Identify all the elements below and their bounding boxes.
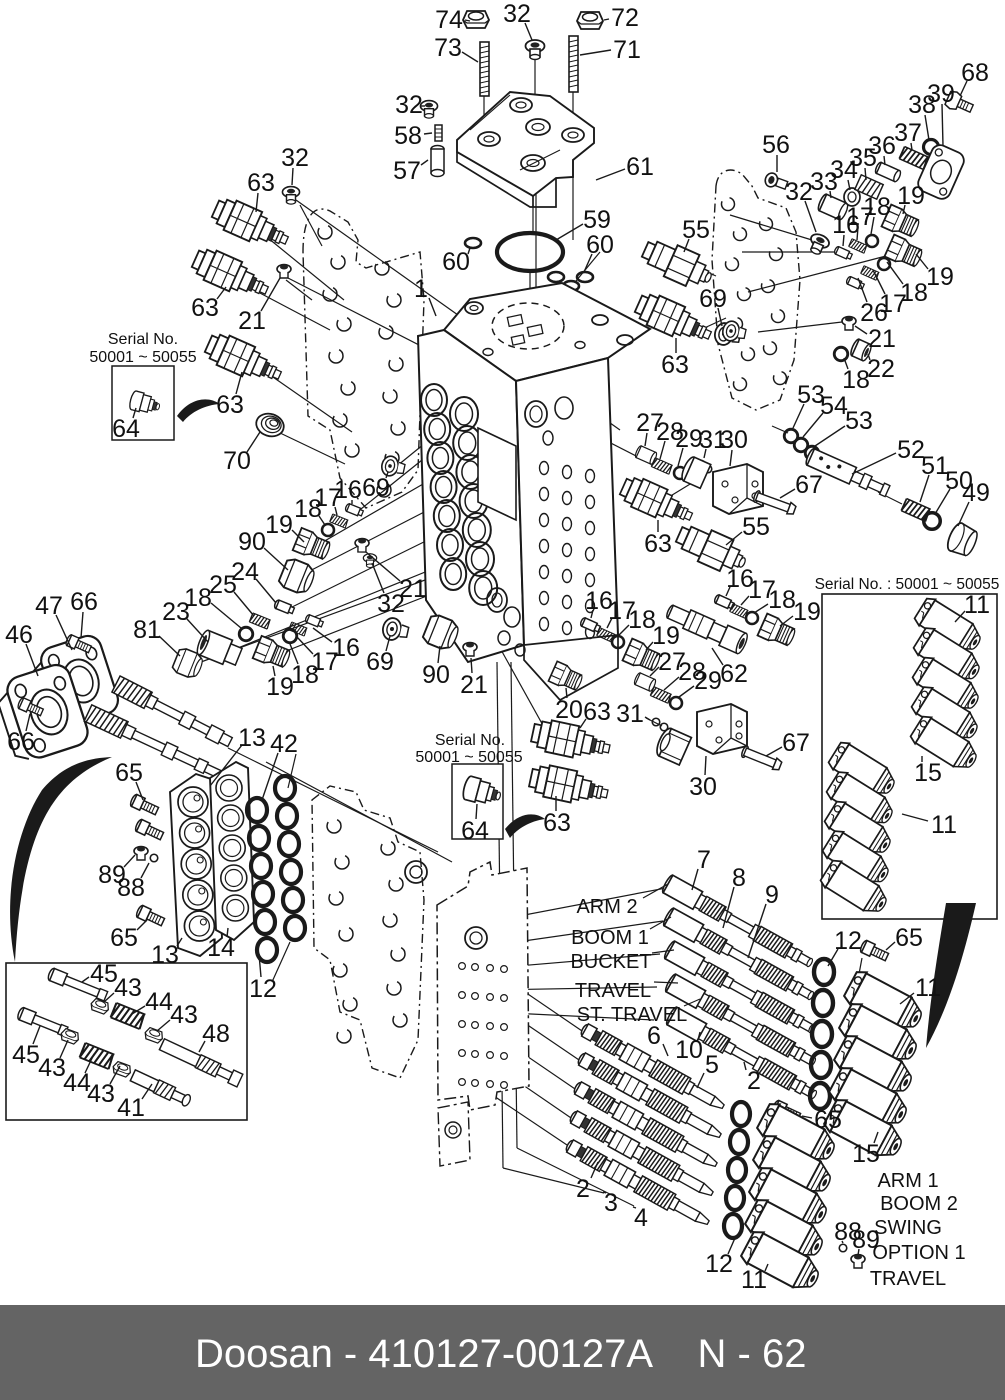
svg-text:30: 30 [720, 426, 748, 454]
svg-text:16: 16 [334, 476, 362, 504]
svg-text:81: 81 [133, 616, 161, 644]
svg-text:44: 44 [145, 988, 173, 1016]
svg-text:57: 57 [393, 157, 421, 185]
svg-text:19: 19 [652, 622, 680, 650]
svg-text:63: 63 [661, 351, 689, 379]
svg-text:18: 18 [863, 193, 891, 221]
svg-text:31: 31 [616, 700, 644, 728]
svg-text:2: 2 [576, 1175, 590, 1203]
svg-text:9: 9 [765, 881, 779, 909]
svg-text:25: 25 [209, 571, 237, 599]
svg-text:7: 7 [697, 846, 711, 874]
svg-text:50001 ~ 50055: 50001 ~ 50055 [415, 749, 522, 766]
svg-text:19: 19 [897, 182, 925, 210]
svg-text:16: 16 [332, 634, 360, 662]
svg-text:90: 90 [422, 661, 450, 689]
svg-text:2: 2 [747, 1067, 761, 1095]
svg-text:39: 39 [927, 80, 955, 108]
svg-text:74: 74 [435, 6, 463, 34]
svg-text:BUCKET: BUCKET [570, 951, 651, 973]
svg-text:N - 62: N - 62 [698, 1332, 807, 1376]
svg-text:11: 11 [964, 591, 990, 619]
svg-text:66: 66 [7, 728, 35, 756]
svg-text:63: 63 [191, 294, 219, 322]
svg-text:64: 64 [112, 415, 140, 443]
svg-text:13: 13 [151, 941, 179, 969]
svg-text:63: 63 [247, 169, 275, 197]
svg-text:32: 32 [281, 144, 309, 172]
svg-text:53: 53 [845, 407, 873, 435]
svg-text:42: 42 [270, 730, 298, 758]
svg-text:OPTION 1: OPTION 1 [872, 1242, 965, 1264]
svg-text:32: 32 [395, 91, 423, 119]
svg-text:Doosan - 410127-00127A: Doosan - 410127-00127A [195, 1332, 653, 1376]
svg-text:66: 66 [70, 588, 98, 616]
svg-text:43: 43 [38, 1054, 66, 1082]
svg-text:60: 60 [586, 231, 614, 259]
svg-text:19: 19 [265, 511, 293, 539]
svg-text:41: 41 [117, 1094, 145, 1122]
svg-text:21: 21 [868, 325, 896, 353]
svg-text:67: 67 [795, 471, 823, 499]
svg-text:67: 67 [782, 729, 810, 757]
svg-text:65: 65 [110, 924, 138, 952]
svg-text:63: 63 [216, 391, 244, 419]
svg-text:1: 1 [414, 275, 428, 303]
svg-text:14: 14 [207, 934, 235, 962]
svg-text:60: 60 [442, 248, 470, 276]
svg-text:11: 11 [931, 811, 957, 839]
svg-text:65: 65 [895, 924, 923, 952]
svg-text:21: 21 [460, 671, 488, 699]
svg-text:ST. TRAVEL: ST. TRAVEL [577, 1004, 687, 1026]
svg-text:26: 26 [860, 299, 888, 327]
svg-text:SWING: SWING [874, 1217, 942, 1239]
svg-text:55: 55 [742, 513, 770, 541]
svg-text:65: 65 [814, 1106, 842, 1134]
svg-text:BOOM 2: BOOM 2 [880, 1193, 958, 1215]
svg-text:22: 22 [867, 355, 895, 383]
svg-text:68: 68 [961, 59, 989, 87]
svg-text:18: 18 [768, 586, 796, 614]
svg-text:6: 6 [647, 1022, 661, 1050]
svg-text:69: 69 [366, 648, 394, 676]
svg-text:ARM 2: ARM 2 [576, 896, 637, 918]
svg-text:12: 12 [705, 1250, 733, 1278]
svg-text:5: 5 [705, 1051, 719, 1079]
svg-text:13: 13 [238, 724, 266, 752]
svg-text:64: 64 [461, 817, 489, 845]
svg-text:43: 43 [87, 1080, 115, 1108]
svg-text:11: 11 [741, 1266, 767, 1294]
svg-text:32: 32 [503, 0, 531, 28]
svg-text:ARM 1: ARM 1 [877, 1170, 938, 1192]
svg-text:BOOM 1: BOOM 1 [571, 927, 649, 949]
svg-text:10: 10 [675, 1036, 703, 1064]
svg-text:63: 63 [543, 809, 571, 837]
svg-text:43: 43 [114, 974, 142, 1002]
svg-text:15: 15 [852, 1140, 880, 1168]
svg-text:Serial No.: Serial No. [108, 331, 178, 348]
svg-text:49: 49 [962, 479, 990, 507]
svg-text:47: 47 [35, 592, 63, 620]
svg-text:65: 65 [115, 759, 143, 787]
svg-text:58: 58 [394, 122, 422, 150]
svg-text:20: 20 [555, 696, 583, 724]
svg-text:73: 73 [434, 34, 462, 62]
svg-text:69: 69 [699, 285, 727, 313]
svg-text:30: 30 [689, 773, 717, 801]
svg-text:63: 63 [644, 530, 672, 558]
svg-text:90: 90 [238, 528, 266, 556]
svg-text:70: 70 [223, 447, 251, 475]
svg-text:12: 12 [834, 927, 862, 955]
svg-text:59: 59 [583, 206, 611, 234]
svg-text:72: 72 [611, 4, 639, 32]
svg-text:48: 48 [202, 1020, 230, 1048]
svg-text:8: 8 [732, 864, 746, 892]
svg-text:43: 43 [170, 1001, 198, 1029]
svg-text:56: 56 [762, 131, 790, 159]
svg-text:18: 18 [842, 366, 870, 394]
svg-text:71: 71 [613, 36, 641, 64]
svg-text:Serial No.: Serial No. [435, 732, 505, 749]
svg-text:3: 3 [604, 1189, 618, 1217]
svg-text:54: 54 [820, 392, 848, 420]
svg-text:45: 45 [12, 1041, 40, 1069]
svg-text:TRAVEL: TRAVEL [870, 1268, 946, 1290]
svg-text:19: 19 [926, 263, 954, 291]
svg-text:19: 19 [793, 598, 821, 626]
svg-text:29: 29 [694, 667, 722, 695]
svg-text:32: 32 [785, 178, 813, 206]
svg-text:61: 61 [626, 153, 654, 181]
svg-text:23: 23 [162, 598, 190, 626]
svg-text:TRAVEL: TRAVEL [575, 980, 651, 1002]
svg-text:21: 21 [399, 575, 427, 603]
svg-text:62: 62 [720, 660, 748, 688]
svg-text:37: 37 [894, 119, 922, 147]
svg-text:4: 4 [634, 1204, 648, 1232]
svg-text:15: 15 [914, 759, 942, 787]
svg-text:63: 63 [583, 698, 611, 726]
svg-text:46: 46 [5, 621, 33, 649]
svg-text:55: 55 [682, 216, 710, 244]
svg-text:69: 69 [362, 474, 390, 502]
svg-text:36: 36 [868, 132, 896, 160]
svg-text:11: 11 [915, 974, 941, 1002]
svg-text:21: 21 [238, 307, 266, 335]
svg-text:50001 ~ 50055: 50001 ~ 50055 [89, 349, 196, 366]
svg-text:19: 19 [266, 673, 294, 701]
svg-text:88: 88 [117, 874, 145, 902]
